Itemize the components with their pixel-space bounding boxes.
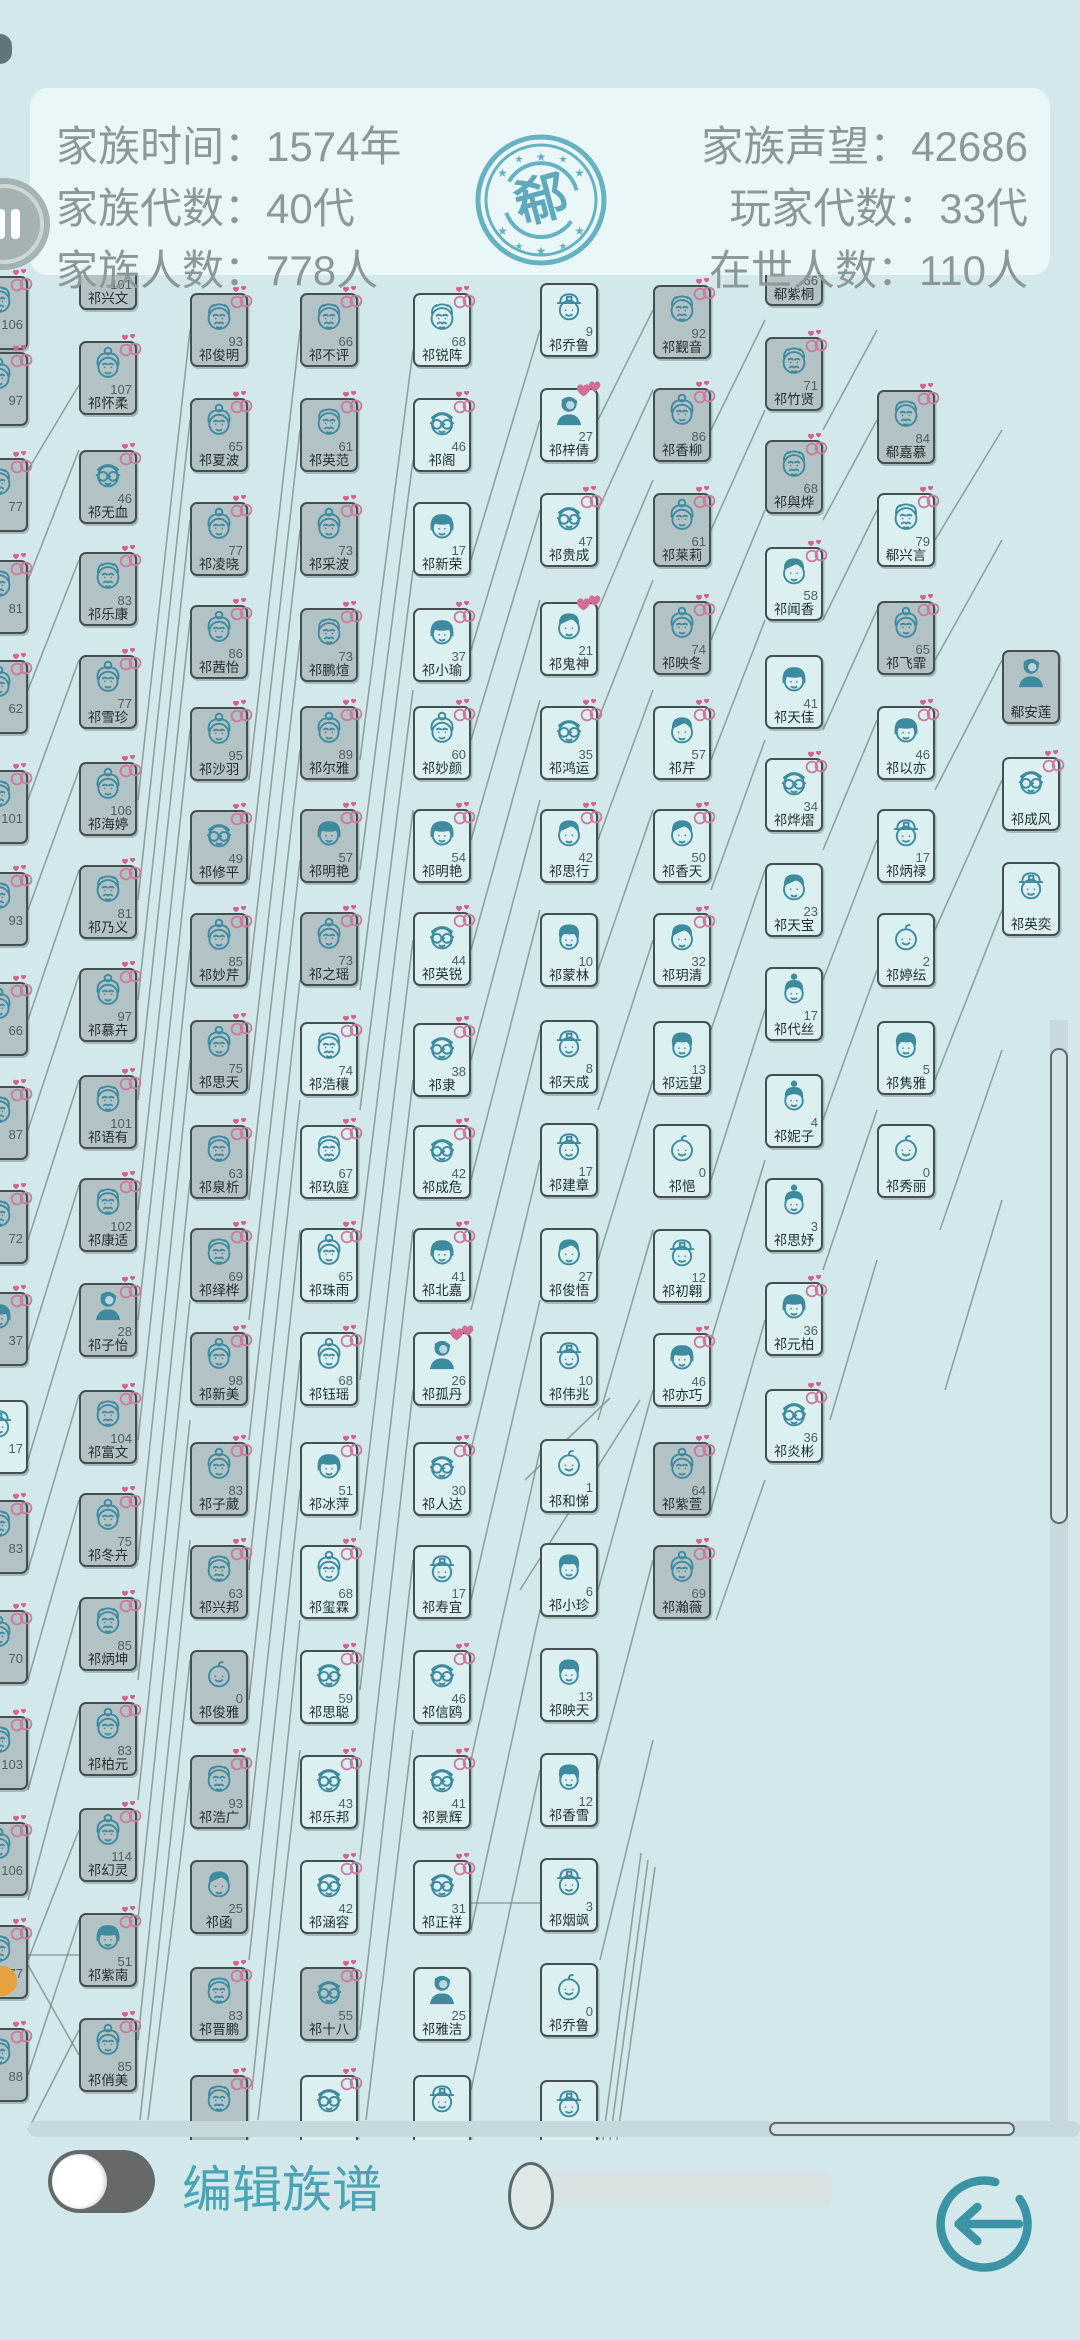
person-name: 祁思行 (542, 865, 596, 879)
person-age: 106 (110, 804, 132, 817)
woman-solid-avatar-icon (88, 1286, 128, 1326)
person-card[interactable]: 59祁思聪 (300, 1650, 358, 1724)
elder-woman-avatar-icon (0, 1613, 19, 1653)
man-glasses-avatar-icon (422, 1445, 462, 1485)
person-name: 祁景辉 (415, 1811, 469, 1825)
person-card[interactable]: 46祁无血 (79, 450, 137, 524)
person-card[interactable]: 89祁尔雅 (300, 706, 358, 780)
elder-woman-avatar-icon (199, 1445, 239, 1485)
person-age: 17 (452, 544, 466, 557)
person-card[interactable]: 46祁信鸥 (413, 1650, 471, 1724)
person-card[interactable]: 17祁新荣 (413, 502, 471, 576)
person-card[interactable]: 50祁香天 (653, 809, 711, 883)
person-card[interactable]: 74祁浩穰 (300, 1022, 358, 1096)
person-card[interactable]: 51祁紫南 (79, 1913, 137, 1987)
woman-avatar-icon (422, 505, 462, 545)
person-card[interactable]: 28祁子怡 (79, 1283, 137, 1357)
elder-man-avatar-icon (0, 1193, 19, 1233)
person-card[interactable]: 祁英奕 (1002, 862, 1060, 936)
person-card[interactable]: 87 (0, 1086, 28, 1160)
back-button[interactable] (932, 2172, 1036, 2276)
young-man-avatar-icon (774, 866, 814, 906)
elder-woman-avatar-icon (199, 401, 239, 441)
person-card[interactable]: 93祁浩广 (190, 1755, 248, 1829)
person-card[interactable]: 83祁柏元 (79, 1702, 137, 1776)
girl-avatar-icon (549, 916, 589, 956)
person-age: 101 (1, 812, 23, 825)
elder-man-avatar-icon (199, 1970, 239, 2010)
woman-avatar-icon (0, 1295, 19, 1335)
elder-woman-avatar-icon (88, 971, 128, 1011)
person-card[interactable]: 58祁闻香 (765, 547, 823, 621)
elder-man-avatar-icon (0, 461, 19, 501)
person-name: 祁香雪 (542, 1809, 596, 1823)
person-card[interactable]: 106祁海婷 (79, 762, 137, 836)
person-card[interactable]: 106 (0, 1822, 28, 1896)
person-age: 81 (9, 602, 23, 615)
elder-woman-avatar-icon (199, 710, 239, 750)
elder-woman-avatar-icon (88, 2021, 128, 2061)
elder-man-avatar-icon (88, 1393, 128, 1433)
girl-avatar-icon (549, 1756, 589, 1796)
person-card[interactable]: 93祁俊明 (190, 293, 248, 367)
person-card[interactable]: 41祁北嘉 (413, 1228, 471, 1302)
person-age: 31 (452, 1902, 466, 1915)
person-card[interactable]: 65祁夏波 (190, 398, 248, 472)
person-name: 祁妮子 (767, 1130, 821, 1144)
person-card[interactable]: 25祁函 (190, 1860, 248, 1934)
person-name: 祁人达 (415, 1498, 469, 1512)
person-card[interactable]: 17 (0, 1400, 28, 1474)
woman-solid-avatar-icon (549, 391, 589, 431)
person-card[interactable]: 98祁新美 (190, 1332, 248, 1406)
person-name: 祁寿宜 (415, 1601, 469, 1615)
edit-tree-toggle[interactable] (48, 2150, 155, 2213)
person-card[interactable]: 13祁映天 (540, 1648, 598, 1722)
elder-man-avatar-icon (0, 279, 19, 319)
person-card[interactable]: 祁成风 (1002, 757, 1060, 831)
person-age: 27 (579, 430, 593, 443)
person-card[interactable]: 0祁俊雅 (190, 1650, 248, 1724)
person-card[interactable]: 104祁富文 (79, 1390, 137, 1464)
person-card[interactable]: 47祁贵成 (540, 493, 598, 567)
person-name: 祁乃义 (81, 921, 135, 935)
young-man-avatar-icon (199, 1863, 239, 1903)
person-card[interactable]: 74祁映冬 (653, 601, 711, 675)
person-card[interactable]: 73祁之瑶 (300, 912, 358, 986)
person-card[interactable]: 2祁婷纭 (877, 913, 935, 987)
person-card[interactable]: 83祁晋鹏 (190, 1967, 248, 2041)
man-glasses-avatar-icon (422, 915, 462, 955)
person-card[interactable]: 75祁冬卉 (79, 1493, 137, 1567)
person-card[interactable]: 43祁乐邦 (300, 1755, 358, 1829)
person-card[interactable]: 17祁建章 (540, 1123, 598, 1197)
person-card[interactable]: 73祁采波 (300, 502, 358, 576)
person-card[interactable]: 72 (0, 1190, 28, 1264)
person-card[interactable]: 44祁英锐 (413, 912, 471, 986)
person-age: 89 (339, 748, 353, 761)
person-card[interactable]: 68祁锐阵 (413, 293, 471, 367)
person-card[interactable]: 17祁寿宜 (413, 1545, 471, 1619)
toggle-knob (52, 2154, 107, 2209)
person-age: 46 (118, 492, 132, 505)
person-card[interactable]: 46祁亦巧 (653, 1333, 711, 1407)
person-name: 郗兴言 (879, 549, 933, 563)
person-card[interactable]: 71祁竹贤 (765, 337, 823, 411)
person-age: 10 (579, 1374, 593, 1387)
stat-row-left: 家族时间：1574年 (56, 116, 401, 178)
person-name: 祁俊悟 (542, 1284, 596, 1298)
person-name: 祁玺霖 (302, 1601, 356, 1615)
person-name: 祁茜怡 (192, 661, 246, 675)
person-card[interactable]: 63祁兴邦 (190, 1545, 248, 1619)
person-card[interactable]: 107祁怀柔 (79, 341, 137, 415)
person-age: 74 (339, 1064, 353, 1077)
person-card[interactable]: 36祁炎彬 (765, 1389, 823, 1463)
boy-cap-avatar-icon (549, 1861, 589, 1901)
person-card[interactable]: 93 (0, 872, 28, 946)
baby-avatar-icon (886, 1127, 926, 1167)
person-card[interactable]: 8祁天成 (540, 1020, 598, 1094)
svg-text:★: ★ (536, 150, 547, 164)
elder-man-avatar-icon (309, 1025, 349, 1065)
person-age: 77 (9, 500, 23, 513)
person-card[interactable]: 26祁孤丹 (413, 1332, 471, 1406)
man-glasses-avatar-icon (1011, 760, 1051, 800)
person-age: 55 (339, 2009, 353, 2022)
person-age: 68 (339, 1587, 353, 1600)
person-card[interactable]: 54祁明艳 (413, 809, 471, 883)
person-card[interactable]: 77祁雪珍 (79, 655, 137, 729)
person-card[interactable]: 84郗嘉慕 (877, 390, 935, 464)
zoom-slider-track[interactable] (532, 2172, 832, 2206)
person-card[interactable]: 79郗兴言 (877, 493, 935, 567)
person-age: 59 (339, 1692, 353, 1705)
person-age: 3 (811, 1220, 818, 1233)
elder-woman-avatar-icon (88, 1705, 128, 1745)
person-age: 17 (804, 1009, 818, 1022)
person-age: 43 (339, 1797, 353, 1810)
person-card[interactable]: 0祁乔鲁 (540, 1963, 598, 2037)
horizontal-scrollbar-thumb[interactable] (769, 2122, 1015, 2136)
person-card[interactable]: 46祁以亦 (877, 706, 935, 780)
elder-man-avatar-icon (422, 296, 462, 336)
person-name: 祁烨熠 (767, 814, 821, 828)
woman-avatar-icon (774, 658, 814, 698)
person-card[interactable]: 64祁紫萱 (653, 1442, 711, 1516)
person-card[interactable]: 68祁钰瑶 (300, 1332, 358, 1406)
person-card[interactable]: 66 (0, 982, 28, 1056)
person-name: 祁小瑜 (415, 664, 469, 678)
boy-cap-avatar-icon (549, 286, 589, 326)
person-card[interactable]: 69祁瀚薇 (653, 1545, 711, 1619)
man-glasses-avatar-icon (774, 761, 814, 801)
person-card[interactable]: 51祁冰萍 (300, 1442, 358, 1516)
person-card[interactable]: 97祁慕卉 (79, 968, 137, 1042)
person-card[interactable]: 61祁英范 (300, 398, 358, 472)
person-card[interactable]: 35祁鸿运 (540, 706, 598, 780)
person-card[interactable]: 70 (0, 1610, 28, 1684)
elder-man-avatar-icon (886, 496, 926, 536)
girl-avatar-icon (662, 1024, 702, 1064)
elder-woman-avatar-icon (309, 709, 349, 749)
person-age: 44 (452, 954, 466, 967)
person-card[interactable]: 86祁香柳 (653, 388, 711, 462)
person-name: 祁俊明 (192, 349, 246, 363)
person-card[interactable]: 67祁玖庭 (300, 1125, 358, 1199)
person-name: 祁妙颜 (415, 762, 469, 776)
stat-row-right: 在世人数：110人 (701, 240, 1028, 302)
person-age: 75 (118, 1535, 132, 1548)
person-card[interactable]: 9祁乔鲁 (540, 283, 598, 357)
person-card[interactable]: 85祁俏美 (79, 2018, 137, 2092)
person-card[interactable]: 101祁语有 (79, 1075, 137, 1149)
person-name: 祁凌晓 (192, 558, 246, 572)
person-card[interactable]: 36祁元柏 (765, 1282, 823, 1356)
person-card[interactable]: 0祁秀丽 (877, 1124, 935, 1198)
person-card[interactable]: 60祁妙颜 (413, 706, 471, 780)
person-name: 祁阁 (415, 454, 469, 468)
person-age: 51 (339, 1484, 353, 1497)
svg-text:★: ★ (536, 244, 547, 258)
person-card[interactable]: 83祁子葳 (190, 1442, 248, 1516)
baby-avatar-icon (886, 916, 926, 956)
vertical-scrollbar-thumb[interactable] (1050, 1048, 1068, 1524)
person-name: 祁泉析 (192, 1181, 246, 1195)
person-name: 祁远望 (655, 1077, 709, 1091)
elder-woman-avatar-icon (0, 355, 19, 395)
person-name: 祁香天 (655, 865, 709, 879)
elder-man-avatar-icon (199, 1548, 239, 1588)
person-card[interactable]: 57祁芹 (653, 706, 711, 780)
person-name: 祁夏波 (192, 454, 246, 468)
person-card[interactable]: 63祁泉析 (190, 1125, 248, 1199)
person-card[interactable]: 62 (0, 660, 28, 734)
elder-woman-avatar-icon (0, 663, 19, 703)
person-card[interactable]: 81祁乃义 (79, 865, 137, 939)
person-age: 93 (229, 1797, 243, 1810)
young-man-avatar-icon (549, 812, 589, 852)
person-card[interactable]: 103 (0, 1716, 28, 1790)
person-card[interactable]: 32祁玥清 (653, 913, 711, 987)
person-card[interactable]: 27祁俊悟 (540, 1228, 598, 1302)
person-age: 12 (692, 1271, 706, 1284)
person-name: 祁烟飒 (542, 1914, 596, 1928)
person-age: 32 (692, 955, 706, 968)
person-card[interactable]: 57祁明艳 (300, 809, 358, 883)
person-name: 祁乔鲁 (542, 2019, 596, 2033)
person-card[interactable]: 郗安莲 (1002, 650, 1060, 724)
person-card[interactable]: 68祁與烨 (765, 440, 823, 514)
man-glasses-avatar-icon (549, 496, 589, 536)
person-age: 35 (579, 748, 593, 761)
stat-row-left: 家族人数：778人 (56, 240, 401, 302)
person-card[interactable]: 6祁小珍 (540, 1543, 598, 1617)
person-age: 2 (923, 955, 930, 968)
person-card[interactable]: 83 (0, 1500, 28, 1574)
person-age: 97 (9, 394, 23, 407)
person-name: 祁兴邦 (192, 1601, 246, 1615)
person-card[interactable]: 88 (0, 2028, 28, 2102)
svg-text:★: ★ (497, 224, 508, 238)
person-card[interactable]: 5祁隽雅 (877, 1021, 935, 1095)
pause-button[interactable] (0, 178, 50, 270)
person-age: 5 (923, 1063, 930, 1076)
person-card[interactable]: 69祁绎桦 (190, 1228, 248, 1302)
boy-cap-avatar-icon (0, 1403, 19, 1443)
person-card[interactable]: 65祁珠雨 (300, 1228, 358, 1302)
family-tree-canvas[interactable]: 1069777816210193668772371783701031067788… (0, 0, 1080, 2140)
person-card[interactable]: 75祁思天 (190, 1020, 248, 1094)
person-card[interactable]: 13祁远望 (653, 1021, 711, 1095)
man-glasses-avatar-icon (199, 813, 239, 853)
baby-avatar-icon (549, 1442, 589, 1482)
person-age: 46 (452, 1692, 466, 1705)
person-age: 42 (452, 1167, 466, 1180)
person-card[interactable]: 55祁十八 (300, 1967, 358, 2041)
person-card[interactable]: 83祁乐康 (79, 552, 137, 626)
person-age: 84 (916, 432, 930, 445)
elder-man-avatar-icon (309, 1128, 349, 1168)
person-card[interactable]: 21祁鬼神 (540, 602, 598, 676)
person-age: 61 (692, 535, 706, 548)
person-name: 祁隽雅 (879, 1077, 933, 1091)
person-age: 27 (579, 1270, 593, 1283)
person-card[interactable]: 85祁妙芹 (190, 913, 248, 987)
elder-woman-avatar-icon (662, 1445, 702, 1485)
person-age: 34 (804, 800, 818, 813)
person-name: 祁慕卉 (81, 1024, 135, 1038)
person-name: 祁富文 (81, 1446, 135, 1460)
person-name: 祁康适 (81, 1234, 135, 1248)
boy-cap-avatar-icon (422, 1548, 462, 1588)
person-age: 81 (118, 907, 132, 920)
person-card[interactable]: 0祁悒 (653, 1124, 711, 1198)
person-age: 36 (804, 1324, 818, 1337)
person-card[interactable]: 114祁幻灵 (79, 1808, 137, 1882)
person-name: 祁天宝 (767, 919, 821, 933)
person-card[interactable]: 30祁人达 (413, 1442, 471, 1516)
person-card[interactable]: 37 (0, 1292, 28, 1366)
person-card[interactable]: 41祁景辉 (413, 1755, 471, 1829)
person-card[interactable]: 37祁小瑜 (413, 608, 471, 682)
person-card[interactable]: 42祁成危 (413, 1125, 471, 1199)
person-card[interactable]: 77 (0, 458, 28, 532)
person-card[interactable]: 61祁莱莉 (653, 493, 711, 567)
person-card[interactable]: 17祁炳禄 (877, 809, 935, 883)
person-card[interactable]: 97 (0, 352, 28, 426)
person-age: 106 (1, 1864, 23, 1877)
person-card[interactable]: 12祁初翱 (653, 1229, 711, 1303)
person-card[interactable]: 49祁修平 (190, 810, 248, 884)
person-age: 73 (339, 544, 353, 557)
person-age: 71 (804, 379, 818, 392)
person-card[interactable]: 31祁正祥 (413, 1860, 471, 1934)
person-name: 祁海婷 (81, 818, 135, 832)
elder-man-avatar-icon (0, 2031, 19, 2071)
person-name: 祁尔雅 (302, 762, 356, 776)
person-card[interactable]: 23祁天宝 (765, 863, 823, 937)
family-seal: ★★ ★★ ★★ ★★ ★★ 郗 (461, 120, 621, 280)
young-man-avatar-icon (549, 1231, 589, 1271)
person-card[interactable]: 38祁隶 (413, 1023, 471, 1097)
person-card[interactable]: 42祁涵容 (300, 1860, 358, 1934)
person-age: 75 (229, 1062, 243, 1075)
person-card[interactable]: 85祁炳坤 (79, 1597, 137, 1671)
person-age: 8 (586, 1062, 593, 1075)
person-name: 祁炳禄 (879, 865, 933, 879)
person-card[interactable]: 102祁康适 (79, 1178, 137, 1252)
person-name: 祁浩穰 (302, 1078, 356, 1092)
person-card[interactable]: 68祁玺霖 (300, 1545, 358, 1619)
person-age: 85 (229, 955, 243, 968)
person-card[interactable]: 42祁思行 (540, 809, 598, 883)
person-card[interactable]: 95祁沙羽 (190, 707, 248, 781)
person-age: 60 (452, 748, 466, 761)
person-age: 41 (804, 697, 818, 710)
person-name: 祁沙羽 (192, 763, 246, 777)
person-card[interactable]: 3祁烟飒 (540, 1858, 598, 1932)
zoom-slider-knob[interactable] (508, 2162, 554, 2230)
person-age: 3 (586, 1900, 593, 1913)
person-name: 祁元柏 (767, 1338, 821, 1352)
person-name: 祁北嘉 (415, 1284, 469, 1298)
girl-avatar-icon (549, 1651, 589, 1691)
person-card[interactable]: 106 (0, 276, 28, 350)
person-card[interactable]: 81 (0, 560, 28, 634)
person-card[interactable]: 4祁妮子 (765, 1074, 823, 1148)
person-card[interactable]: 77祁凌晓 (190, 502, 248, 576)
person-name: 祁小珍 (542, 1599, 596, 1613)
man-glasses-avatar-icon (549, 709, 589, 749)
person-name: 祁孤丹 (415, 1388, 469, 1402)
person-card[interactable]: 34祁烨熠 (765, 758, 823, 832)
person-age: 41 (452, 1270, 466, 1283)
person-age: 13 (579, 1690, 593, 1703)
person-age: 63 (229, 1587, 243, 1600)
person-age: 63 (229, 1167, 243, 1180)
person-card[interactable]: 86祁茜怡 (190, 605, 248, 679)
person-card[interactable]: 25祁雅洁 (413, 1967, 471, 2041)
person-card[interactable]: 17祁代丝 (765, 967, 823, 1041)
person-age: 13 (692, 1063, 706, 1076)
person-age: 73 (339, 954, 353, 967)
person-card[interactable]: 10祁蒙林 (540, 913, 598, 987)
person-card[interactable]: 27祁梓倩 (540, 388, 598, 462)
man-glasses-avatar-icon (422, 1026, 462, 1066)
person-age: 102 (110, 1220, 132, 1233)
person-card[interactable]: 65祁飞霏 (877, 601, 935, 675)
person-name: 郗安莲 (1004, 706, 1058, 720)
person-card[interactable]: 10祁伟兆 (540, 1332, 598, 1406)
person-age: 36 (804, 1431, 818, 1444)
person-card[interactable]: 12祁香雪 (540, 1753, 598, 1827)
person-name: 祁乐康 (81, 608, 135, 622)
family-tree-screen: { "header": { "left_stats": [ {"label":"… (0, 0, 1080, 2340)
person-card[interactable]: 3祁思妤 (765, 1178, 823, 1252)
person-card[interactable]: 41祁天佳 (765, 655, 823, 729)
elder-man-avatar-icon (0, 1503, 19, 1543)
person-card[interactable]: 46祁阁 (413, 398, 471, 472)
person-age: 57 (339, 851, 353, 864)
elder-man-avatar-icon (199, 1128, 239, 1168)
person-card[interactable]: 66祁不评 (300, 293, 358, 367)
person-name: 祁柏元 (81, 1758, 135, 1772)
person-age: 0 (923, 1166, 930, 1179)
person-card[interactable]: 73祁鹏煊 (300, 608, 358, 682)
person-card[interactable]: 1祁和悌 (540, 1439, 598, 1513)
person-card[interactable]: 101 (0, 770, 28, 844)
